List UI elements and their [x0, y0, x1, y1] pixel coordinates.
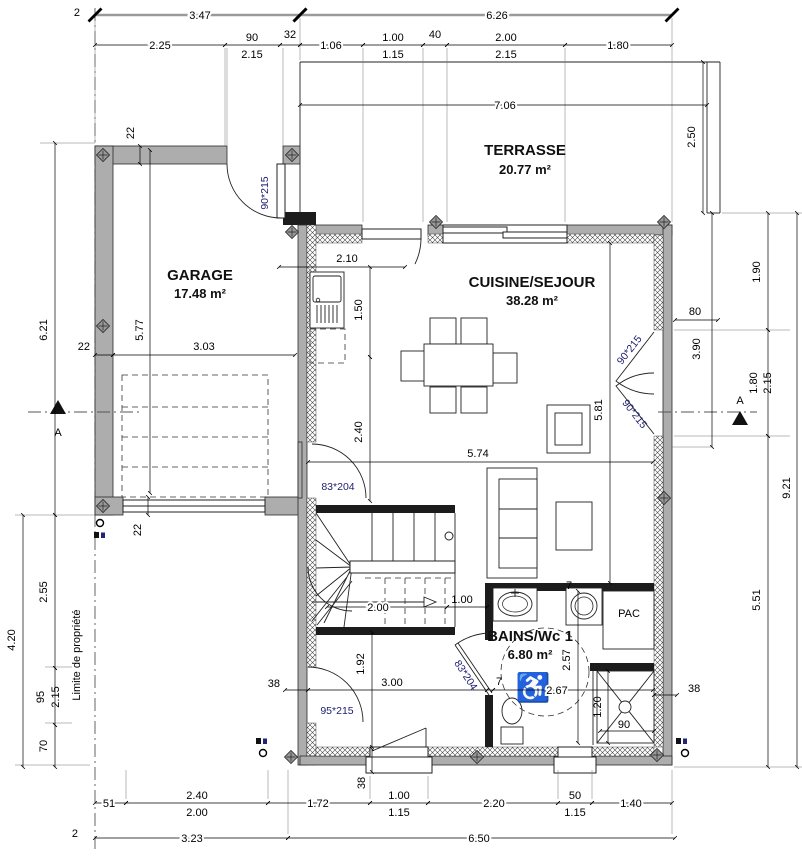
- dim-215r: 2.15: [762, 372, 774, 393]
- limite-propriete-label: Limite de propriété: [71, 609, 83, 700]
- dim-106: 1.06: [320, 40, 341, 52]
- dim-38w: 38: [356, 777, 368, 789]
- door-labels: 90*215 90*215 90*215 83*204 83*204 95*21…: [259, 176, 649, 717]
- dim-240b: 2.40: [186, 790, 207, 802]
- dim-22c: 22: [132, 524, 144, 536]
- dim-32: 32: [284, 29, 296, 41]
- dim-115b2: 1.15: [564, 807, 585, 819]
- dim-220: 2.20: [483, 798, 504, 810]
- dim-51: 51: [103, 798, 115, 810]
- dim-140: 1.40: [620, 798, 641, 810]
- dim-225: 2.25: [149, 40, 170, 52]
- shower: [597, 671, 654, 743]
- door-label-garage: 90*215: [259, 176, 271, 209]
- dim-38h: 38: [268, 678, 280, 690]
- dim-100b: 1.00: [388, 790, 409, 802]
- floor-plan-page: ♿ A A: [0, 0, 802, 861]
- floor-plan-drawing: ♿ A A: [0, 0, 802, 861]
- dim-323: 3.23: [181, 833, 202, 845]
- dim-150: 1.50: [353, 299, 365, 320]
- dim-200s: 2.00: [367, 602, 388, 614]
- garage-exterior-door: [227, 164, 285, 218]
- room-bains-name: BAINS/Wc 1: [487, 628, 573, 645]
- dim-200b: 2.00: [186, 807, 207, 819]
- dim-303: 3.03: [193, 341, 214, 353]
- dim-250: 2.50: [686, 126, 698, 147]
- prop-2-bottom: 2: [72, 828, 78, 840]
- dim-190: 1.90: [751, 261, 763, 282]
- dim-192: 1.92: [355, 653, 367, 674]
- dim-22b: 22: [78, 341, 90, 353]
- dim-215t2: 2.15: [495, 49, 516, 61]
- section-label-left: A: [54, 427, 62, 439]
- dim-650: 6.50: [468, 833, 489, 845]
- dim-90b: 90: [618, 719, 630, 731]
- dim-100s: 1.00: [451, 594, 472, 606]
- section-arrow-left: [50, 400, 66, 414]
- dim-390: 3.90: [691, 338, 703, 359]
- dim-7b: 7: [566, 580, 572, 592]
- dim-115t: 1.15: [382, 49, 403, 61]
- door-label-hall: 83*204: [321, 481, 354, 493]
- dim-215t: 2.15: [241, 49, 262, 61]
- dim-420: 4.20: [6, 629, 18, 650]
- dim-706: 7.06: [494, 100, 515, 112]
- washbasin: [493, 588, 537, 621]
- room-terrasse-area: 20.77 m²: [499, 162, 552, 177]
- dim-210: 2.10: [336, 253, 357, 265]
- room-garage-name: GARAGE: [167, 267, 233, 284]
- dim-347: 3.47: [189, 10, 210, 22]
- extension-lines: [15, 18, 802, 834]
- dim-40: 40: [429, 29, 441, 41]
- toilet: [501, 698, 523, 744]
- dim-921: 9.21: [781, 477, 793, 498]
- dim-115b: 1.15: [388, 807, 409, 819]
- room-bains-area: 6.80 m²: [508, 647, 553, 662]
- section-markers: A A: [28, 395, 757, 439]
- dim-7h: 7: [496, 676, 502, 688]
- dim-180r: 1.80: [748, 372, 760, 393]
- kitchen-north-door: [362, 229, 421, 264]
- dim-180: 1.80: [607, 40, 628, 52]
- door-label-entry: 95*215: [320, 705, 353, 717]
- dining-set: [401, 318, 517, 413]
- dimension-lines: [23, 15, 797, 838]
- dim-626: 6.26: [486, 10, 507, 22]
- dimension-labels: 3.47 6.26 2.25 90 2.15 32 1.06 1.00 1.15…: [6, 7, 793, 845]
- dim-95l: 95: [35, 691, 47, 703]
- room-pac-name: PAC: [618, 608, 640, 620]
- dim-22a: 22: [125, 127, 137, 139]
- dim-581: 5.81: [593, 399, 605, 420]
- dim-255: 2.55: [38, 581, 50, 602]
- coffee-table: [556, 502, 592, 550]
- dim-172: 1.72: [307, 798, 328, 810]
- section-arrow-right: [732, 411, 748, 425]
- dim-577: 5.77: [134, 319, 146, 340]
- dim-240: 2.40: [353, 421, 365, 442]
- dim-300h: 3.00: [381, 677, 402, 689]
- dim-574: 5.74: [467, 448, 488, 460]
- dim-120: 1.20: [592, 696, 604, 717]
- room-terrasse-name: TERRASSE: [484, 142, 566, 159]
- washing-machine: [566, 588, 602, 625]
- room-cuisine-area: 38.28 m²: [506, 293, 559, 308]
- room-garage-area: 17.48 m²: [174, 286, 227, 301]
- dim-200t: 2.00: [495, 32, 516, 44]
- dim-215l: 2.15: [50, 686, 62, 707]
- door-label-french-bottom: 90*215: [619, 397, 649, 431]
- section-label-right: A: [736, 395, 744, 407]
- dim-551: 5.51: [751, 589, 763, 610]
- dim-100t: 1.00: [382, 32, 403, 44]
- sofa: [487, 468, 537, 578]
- prop-2-top: 2: [74, 7, 80, 19]
- pac-closet: [603, 591, 654, 649]
- dim-50: 50: [569, 790, 581, 802]
- dim-621: 6.21: [38, 319, 50, 340]
- dim-90t: 90: [246, 32, 258, 44]
- dim-38r: 38: [688, 683, 700, 695]
- wheelchair-icon: ♿: [516, 671, 551, 704]
- dim-80: 80: [689, 306, 701, 318]
- dim-267: 2.67: [546, 685, 567, 697]
- armchair: [547, 405, 590, 453]
- dim-257: 2.57: [561, 649, 573, 670]
- room-cuisine-name: CUISINE/SEJOUR: [469, 274, 596, 291]
- dim-70: 70: [38, 740, 50, 752]
